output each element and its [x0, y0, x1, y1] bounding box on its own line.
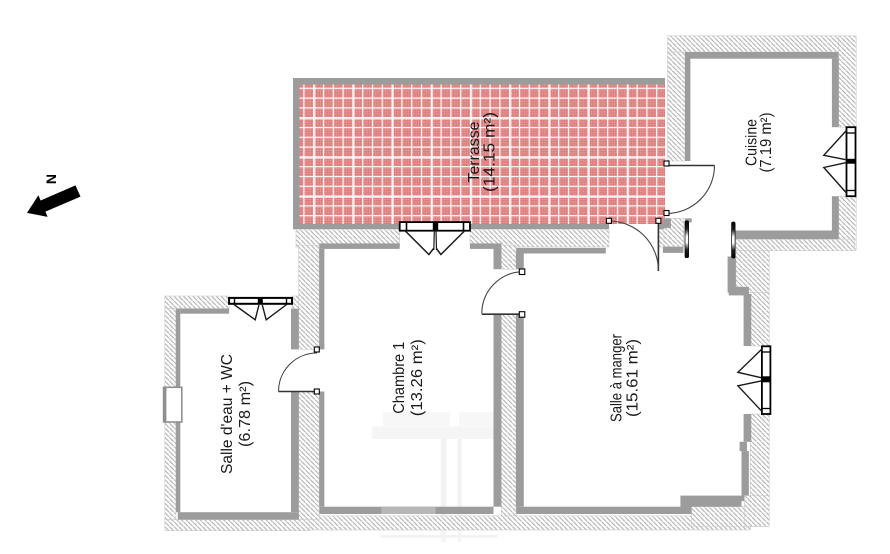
- svg-text:(15.61 m²): (15.61 m²): [625, 339, 642, 417]
- svg-text:(14.15 m²): (14.15 m²): [482, 112, 499, 192]
- svg-text:Salle d'eau + WC: Salle d'eau + WC: [219, 354, 236, 474]
- svg-text:Chambre 1: Chambre 1: [391, 342, 408, 414]
- svg-text:(7.19 m²): (7.19 m²): [758, 113, 775, 173]
- svg-text:(6.78 m²): (6.78 m²): [237, 381, 254, 447]
- svg-text:(13.26 m²): (13.26 m²): [409, 339, 426, 416]
- svg-text:Salle à manger: Salle à manger: [608, 334, 625, 422]
- svg-text:Terrasse: Terrasse: [466, 122, 483, 183]
- svg-text:N: N: [43, 174, 59, 184]
